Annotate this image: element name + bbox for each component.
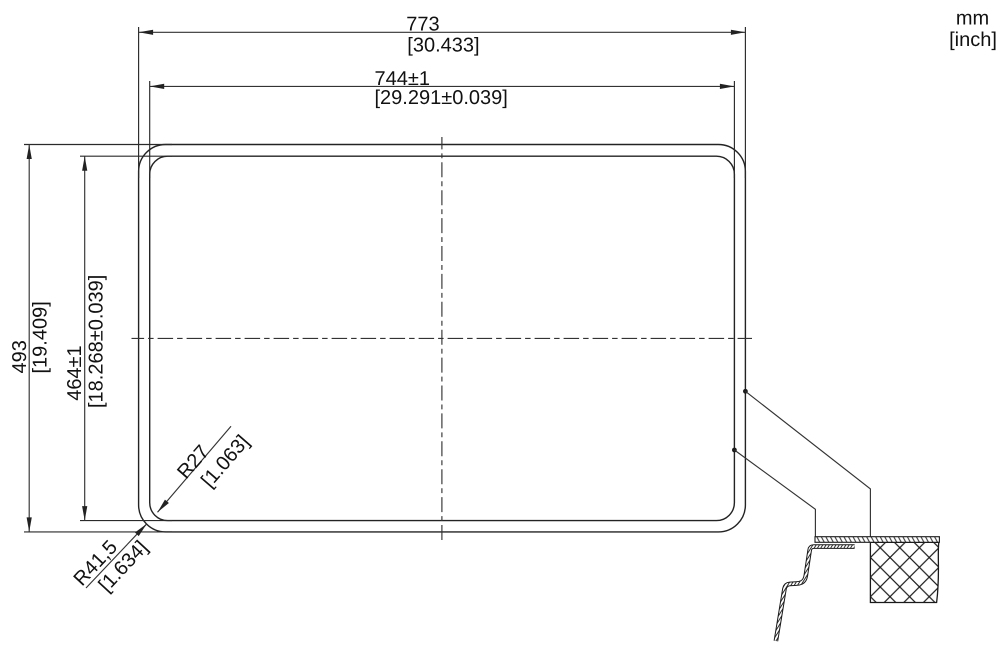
svg-text:[29.291±0.039]: [29.291±0.039] <box>375 87 508 109</box>
svg-text:[30.433]: [30.433] <box>407 34 479 56</box>
svg-text:[18.268±0.039]: [18.268±0.039] <box>85 275 107 408</box>
svg-text:mm: mm <box>956 8 989 30</box>
svg-text:773: 773 <box>406 14 439 36</box>
svg-text:464±1: 464±1 <box>64 345 86 400</box>
svg-text:[19.409]: [19.409] <box>30 301 52 373</box>
svg-text:[inch]: [inch] <box>949 29 997 51</box>
svg-text:493: 493 <box>9 340 31 373</box>
